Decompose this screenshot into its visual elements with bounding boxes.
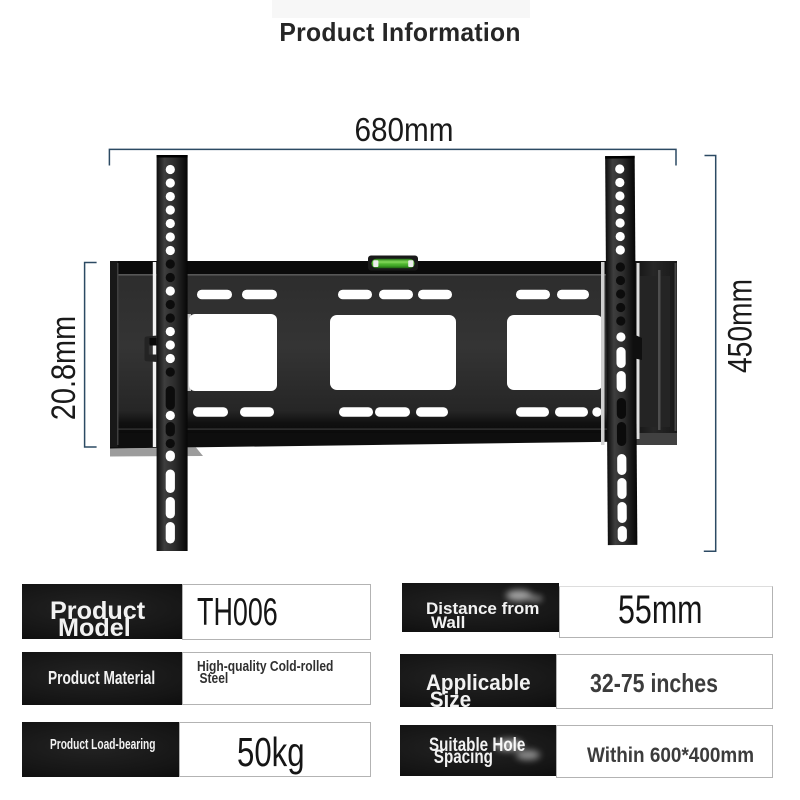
svg-text:680mm: 680mm <box>355 112 454 149</box>
svg-text:20.8mm: 20.8mm <box>44 316 83 420</box>
svg-text:450mm: 450mm <box>721 279 759 373</box>
